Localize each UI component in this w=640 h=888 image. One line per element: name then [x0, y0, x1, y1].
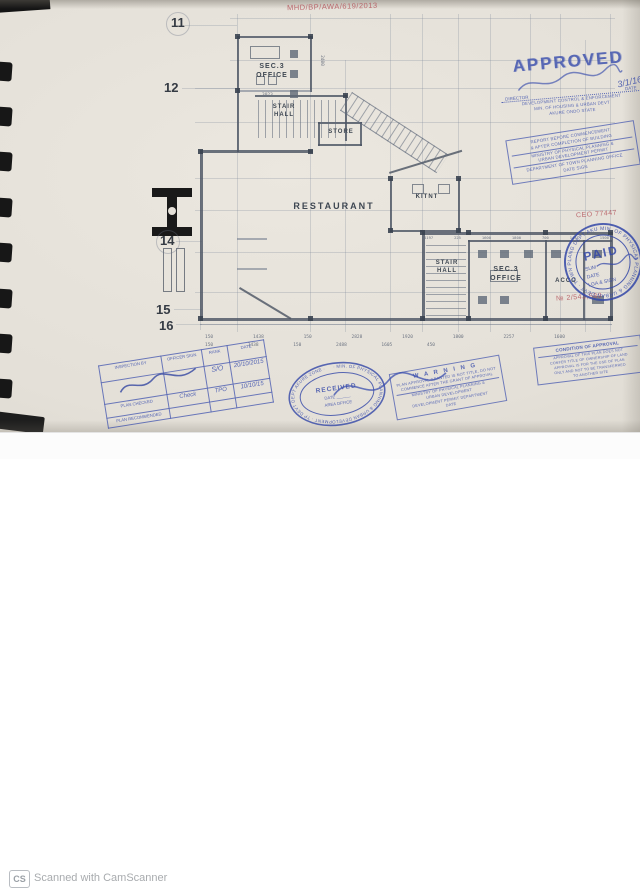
room-label-line: SEC.3 — [482, 266, 530, 275]
binding-tooth — [0, 288, 13, 308]
dimension-value: 4197 — [424, 235, 433, 240]
wall-segment — [458, 178, 460, 232]
column-marker — [456, 228, 461, 233]
furniture-symbol — [500, 250, 509, 258]
dimension-value: 3023 — [262, 93, 273, 98]
column-marker — [308, 34, 313, 39]
wall-segment — [237, 36, 239, 152]
room-label-line: STAIR — [428, 260, 466, 268]
room-label-line: SEC.3 — [248, 63, 296, 72]
grid-line — [230, 18, 615, 19]
grid-label-16: 16 — [159, 318, 173, 333]
furniture-symbol — [478, 250, 487, 258]
wall-segment — [468, 240, 470, 320]
paper-photo: 11 12 14 15 16 SEC.3 OFFICE STAIR HALL S… — [0, 0, 640, 432]
wall-segment — [237, 238, 267, 240]
camscanner-logo-icon: CS — [9, 870, 30, 888]
room-label-kitchen: KITNT — [407, 194, 447, 202]
binding-tooth — [0, 333, 13, 353]
column-marker — [420, 316, 425, 321]
wall-segment — [237, 90, 311, 92]
room-label-line: HALL — [262, 112, 306, 120]
dimension-value: 1600 — [482, 235, 491, 240]
furniture-symbol — [438, 184, 450, 194]
dimension-value: 150 — [304, 335, 312, 340]
wall-segment — [545, 240, 547, 320]
room-label-line: OFFICE — [248, 72, 296, 81]
camscanner-bar: CS Scanned with CamScanner — [0, 432, 640, 459]
grid-line — [185, 25, 237, 26]
dimension-value: 1800 — [453, 335, 464, 340]
binding-tooth — [0, 151, 13, 171]
room-label-stair-top: STAIR HALL — [262, 104, 306, 119]
room-label-office-top: SEC.3 OFFICE — [248, 63, 296, 81]
room-label-stair-bottom: STAIR HALL — [428, 260, 466, 275]
stamp-inspection: INSPECTION BY OFFICER SIGN RANK DATE S/O… — [98, 339, 274, 428]
furniture-symbol — [524, 250, 533, 258]
column-marker — [198, 316, 203, 321]
grid-line — [195, 292, 615, 293]
column-marker — [198, 149, 203, 154]
binding-tooth — [0, 61, 13, 81]
binding-tooth — [0, 197, 13, 217]
furniture-symbol — [290, 50, 298, 58]
wall-segment — [200, 150, 313, 153]
wall-segment — [200, 324, 612, 325]
column-marker — [456, 176, 461, 181]
wall-segment — [390, 178, 392, 232]
wall-segment — [200, 318, 612, 321]
camscanner-label: Scanned with CamScanner — [34, 872, 167, 884]
stair-treads — [426, 244, 466, 316]
wall-segment — [360, 122, 362, 146]
furniture-symbol — [290, 90, 298, 98]
wall-segment — [237, 268, 267, 270]
scanned-document-page: 11 12 14 15 16 SEC.3 OFFICE STAIR HALL S… — [0, 0, 640, 458]
wall-segment — [318, 144, 362, 146]
column-marker — [308, 149, 313, 154]
beam-notch — [168, 207, 176, 215]
column-marker — [308, 316, 313, 321]
paid-title: PAID — [582, 243, 620, 264]
wall-segment — [422, 232, 425, 321]
room-label-restaurant: RESTAURANT — [288, 201, 380, 212]
column-marker — [388, 228, 393, 233]
steel-column-symbol — [152, 188, 192, 236]
column-marker — [388, 176, 393, 181]
column-marker — [466, 316, 471, 321]
room-label-line: HALL — [428, 268, 466, 276]
grid-line — [176, 324, 202, 325]
column-outline — [176, 248, 185, 292]
wall-segment — [200, 150, 203, 320]
grid-line — [174, 309, 202, 310]
grid-line — [195, 210, 615, 211]
room-label-store: STORE — [322, 129, 360, 137]
wall-segment — [237, 36, 313, 38]
furniture-symbol — [500, 296, 509, 304]
stamp-report: REPORT BEFORE COMMENCEMENT & AFTER COMPL… — [505, 120, 640, 185]
column-marker — [543, 316, 548, 321]
dimension-value: 225 — [454, 235, 461, 240]
wall-segment — [310, 36, 312, 92]
dimension-value: 1800 — [512, 235, 521, 240]
dimension-value: 700 — [542, 235, 549, 240]
dimension-value: 2400 — [319, 55, 324, 66]
furniture-symbol — [412, 184, 424, 194]
paid-sum-label: SUM — [585, 265, 597, 273]
dimension-value: 2488 — [336, 343, 347, 348]
grid-line — [490, 14, 491, 332]
dimension-value: 450 — [427, 343, 435, 348]
binding-tooth — [0, 242, 13, 262]
room-label-line: STAIR — [262, 104, 306, 112]
column-marker — [235, 88, 240, 93]
column-marker — [608, 316, 613, 321]
furniture-symbol — [250, 46, 280, 59]
furniture-symbol — [478, 296, 487, 304]
grid-label-11: 11 — [171, 15, 185, 30]
room-label-office-bottom: SEC.3 OFFICE — [482, 266, 530, 284]
dimension-value: 150 — [293, 343, 301, 348]
dimension-value: 1605 — [381, 343, 392, 348]
grid-label-15: 15 — [156, 302, 170, 317]
grid-line — [182, 88, 237, 89]
grid-label-14: 14 — [160, 233, 174, 248]
column-marker — [343, 93, 348, 98]
column-marker — [235, 34, 240, 39]
dimension-value: 1600 — [554, 335, 565, 340]
column-outline — [163, 248, 172, 292]
stamp-approved: APPROVED DIRECTOR DATE 3/1/16 DEVELOPMEN… — [498, 46, 640, 120]
dimension-value: 2828 — [352, 335, 363, 340]
dimension-value: 2257 — [503, 335, 514, 340]
grid-label-12: 12 — [164, 80, 178, 95]
binding-tooth — [0, 378, 13, 398]
dimension-value: 150 — [205, 335, 213, 340]
red-file-number: MHD/BP/AWA/619/2013 — [287, 1, 378, 12]
binding-tooth — [0, 106, 13, 126]
dimension-value: 1920 — [402, 335, 413, 340]
room-label-line: OFFICE — [482, 275, 530, 284]
